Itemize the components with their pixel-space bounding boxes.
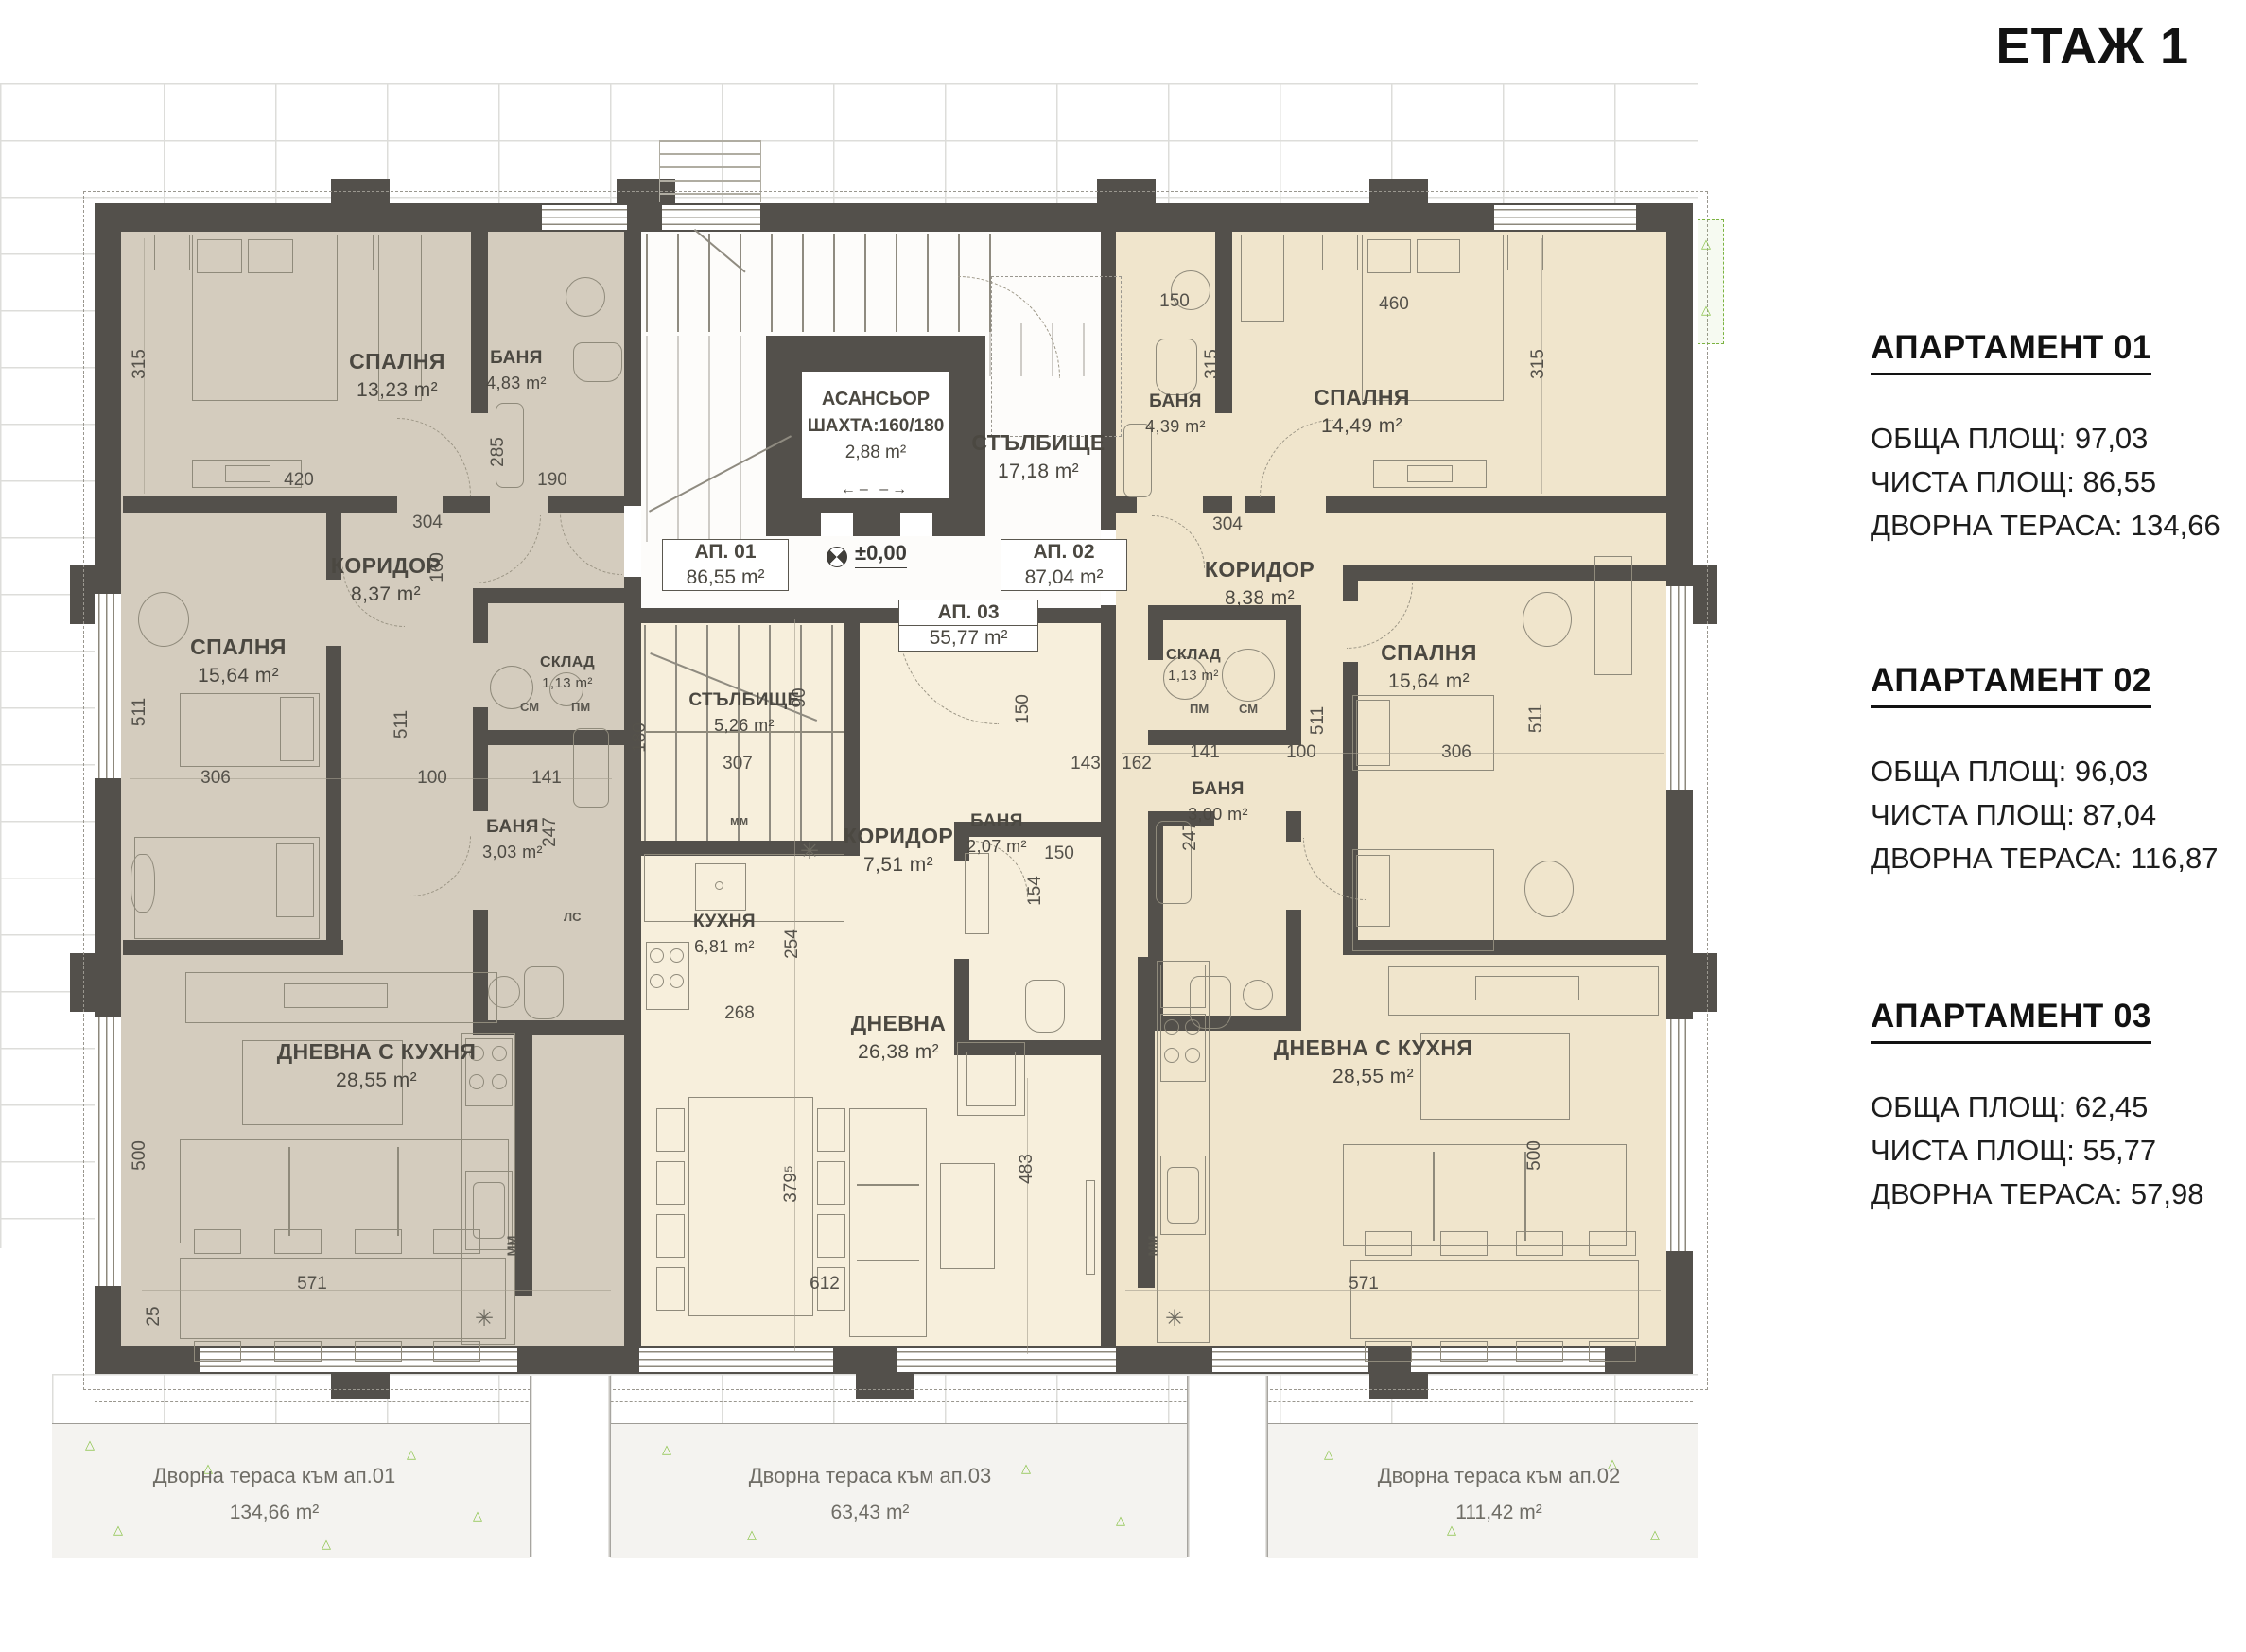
room-label-ap1-storage: СКЛАД 1,13 m² bbox=[540, 652, 595, 693]
dim-label: 268 bbox=[724, 1003, 755, 1024]
room-label-ap1-bed2: СПАЛНЯ 15,64 m² bbox=[190, 632, 287, 690]
dim-label: 304 bbox=[1212, 514, 1243, 535]
dim-label: 180 bbox=[630, 722, 651, 753]
room-label-ap2-bath1: БАНЯ 4,39 m² bbox=[1145, 390, 1206, 439]
dim-line bbox=[1027, 1078, 1028, 1354]
apartment-01-info: АПАРТАМЕНТ 01 ОБЩА ПЛОЩ: 97,03 ЧИСТА ПЛО… bbox=[1871, 329, 2246, 548]
room-label-ap1-bed1: СПАЛНЯ 13,23 m² bbox=[349, 346, 445, 405]
room-label-ap2-living: ДНЕВНА С КУХНЯ 28,55 m² bbox=[1274, 1033, 1473, 1091]
dryer-tag: ПМ bbox=[1190, 702, 1209, 716]
plant-marker-icon bbox=[662, 1442, 671, 1457]
dim-label: 285 bbox=[488, 437, 509, 467]
dim-label: 315 bbox=[1528, 349, 1549, 379]
dim-label: 511 bbox=[1308, 706, 1329, 735]
dim-label: 511 bbox=[130, 698, 150, 726]
page-title: ЕТАЖ 1 bbox=[1996, 17, 2189, 76]
dim-label: 307 bbox=[723, 754, 753, 774]
room-label-ap1-bath2: БАНЯ 3,03 m² bbox=[482, 815, 543, 864]
room-label-ap3-corridor: КОРИДОР 7,51 m² bbox=[844, 821, 953, 879]
room-label-ap1-bath1: БАНЯ 4,83 m² bbox=[486, 346, 547, 395]
plant-marker-icon bbox=[747, 1527, 757, 1542]
dryer-tag: ПМ bbox=[571, 700, 590, 714]
dim-label: 306 bbox=[200, 768, 231, 789]
dim-label: 483 bbox=[1017, 1154, 1037, 1184]
dim-label: 141 bbox=[1190, 742, 1220, 763]
elevator-name: АСАНСЬОР bbox=[822, 389, 930, 409]
unit-code: АП. 01 bbox=[663, 540, 788, 565]
symbol-icon bbox=[1165, 1305, 1184, 1332]
symbol-icon bbox=[800, 838, 819, 865]
level-marker-icon bbox=[827, 547, 847, 567]
plant-marker-icon bbox=[407, 1447, 416, 1462]
room-label-ap2-bed1: СПАЛНЯ 14,49 m² bbox=[1314, 382, 1410, 441]
dim-label: 420 bbox=[284, 470, 314, 491]
dim-label: 190 bbox=[537, 470, 567, 491]
room-label-ap2-bath2: БАНЯ 3,00 m² bbox=[1188, 777, 1248, 826]
washer-tag: СМ bbox=[520, 700, 539, 714]
room-label-ap2-bed2: СПАЛНЯ 15,64 m² bbox=[1381, 637, 1477, 696]
dim-label: 571 bbox=[297, 1274, 327, 1295]
upper-floor-dashed-outline bbox=[991, 276, 1122, 437]
plant-marker-icon bbox=[1447, 1522, 1456, 1538]
mm-tag: ММ bbox=[504, 1236, 518, 1257]
apartment-02-heading: АПАРТАМЕНТ 02 bbox=[1871, 662, 2151, 708]
dim-label: 100 bbox=[1286, 742, 1316, 763]
room-label-ap1-corridor: КОРИДОР 8,37 m² bbox=[331, 550, 441, 609]
unit-code: АП. 02 bbox=[1001, 540, 1126, 565]
unit-tag-ap2: АП. 02 87,04 m² bbox=[1001, 539, 1127, 591]
symbol-icon bbox=[475, 1305, 494, 1332]
elevator-label: АСАНСЬОР ШАХТА:160/180 2,88 m² ←– –→ bbox=[802, 386, 949, 500]
terrace-label-ap3: Дворна тераса към ап.03 63,43 m² bbox=[749, 1464, 992, 1524]
room-label-ap2-storage: СКЛАД 1,13 m² bbox=[1166, 645, 1221, 686]
floor-plan-page: ЕТАЖ 1 АПАРТАМЕНТ 01 ОБЩА ПЛОЩ: 97,03 ЧИ… bbox=[0, 0, 2246, 1652]
plant-marker-icon bbox=[1116, 1513, 1125, 1528]
building-outline-dashed bbox=[83, 191, 1708, 1390]
elevator-door-arrows: ←– –→ bbox=[802, 478, 949, 500]
dim-label: 254 bbox=[782, 929, 803, 959]
dim-label: 150 bbox=[1013, 694, 1034, 724]
paving-top bbox=[52, 83, 1698, 203]
terrace-path bbox=[1187, 1376, 1268, 1557]
room-label-ap2-corridor: КОРИДОР 8,38 m² bbox=[1205, 554, 1315, 613]
apartment-01-terrace: ДВОРНА ТЕРАСА: 134,66 bbox=[1871, 504, 2246, 548]
apartment-03-info: АПАРТАМЕНТ 03 ОБЩА ПЛОЩ: 62,45 ЧИСТА ПЛО… bbox=[1871, 998, 2246, 1216]
dim-label: 306 bbox=[1441, 742, 1471, 763]
ls-tag: ЛС bbox=[564, 910, 582, 924]
elevator-shaft-size: ШАХТА:160/180 bbox=[808, 416, 945, 436]
plant-marker-icon bbox=[1701, 236, 1711, 252]
plant-marker-icon bbox=[1701, 303, 1711, 318]
plant-marker-icon bbox=[113, 1522, 123, 1538]
terrace-label-ap1: Дворна тераса към ап.01 134,66 m² bbox=[153, 1464, 396, 1524]
plant-marker-icon bbox=[473, 1508, 482, 1523]
room-label-ap1-living: ДНЕВНА С КУХНЯ 28,55 m² bbox=[277, 1036, 477, 1095]
dim-label: 143 bbox=[1071, 754, 1101, 774]
dim-label: 511 bbox=[392, 710, 412, 739]
apartment-01-total: ОБЩА ПЛОЩ: 97,03 bbox=[1871, 417, 2246, 461]
dim-label: 571 bbox=[1349, 1274, 1379, 1295]
dim-label: 379⁵ bbox=[781, 1165, 802, 1203]
paving-left bbox=[0, 83, 95, 1248]
dim-label: 162 bbox=[1122, 754, 1152, 774]
apartment-03-heading: АПАРТАМЕНТ 03 bbox=[1871, 998, 2151, 1044]
dim-label: 315 bbox=[1202, 349, 1223, 379]
apartment-03-total: ОБЩА ПЛОЩ: 62,45 bbox=[1871, 1086, 2246, 1129]
unit-tag-ap3: АП. 03 55,77 m² bbox=[898, 600, 1038, 652]
dim-label: 150 bbox=[1159, 291, 1190, 312]
apartment-02-terrace: ДВОРНА ТЕРАСА: 116,87 bbox=[1871, 837, 2246, 880]
room-label-ap3-bath: БАНЯ 2,07 m² bbox=[966, 809, 1027, 859]
dim-label: 141 bbox=[531, 768, 562, 789]
plant-marker-icon bbox=[1324, 1447, 1333, 1462]
dim-label: 247 bbox=[540, 817, 561, 847]
room-label-ap3-stairs: СТЪЛБИЩЕ 5,26 m² bbox=[688, 688, 799, 738]
apartment-03-net: ЧИСТА ПЛОЩ: 55,77 bbox=[1871, 1129, 2246, 1173]
apartment-01-net: ЧИСТА ПЛОЩ: 86,55 bbox=[1871, 461, 2246, 504]
dim-label: 25 bbox=[144, 1306, 165, 1326]
unit-code: АП. 03 bbox=[899, 600, 1037, 626]
elevator-area: 2,88 m² bbox=[845, 443, 906, 462]
dim-label: 612 bbox=[810, 1274, 840, 1295]
terrace-dashed-line bbox=[95, 1401, 1693, 1402]
washer-tag: СМ bbox=[1239, 702, 1258, 716]
mm-tag: мм bbox=[730, 813, 748, 827]
room-label-ap3-living: ДНЕВНА 26,38 m² bbox=[851, 1008, 947, 1067]
dim-label: 304 bbox=[412, 513, 443, 533]
mm-tag: ММ bbox=[1145, 1236, 1159, 1257]
room-label-ap3-kitchen: КУХНЯ 6,81 m² bbox=[693, 910, 756, 959]
plant-marker-icon bbox=[1021, 1461, 1031, 1476]
dim-label: 500 bbox=[1524, 1140, 1545, 1171]
terrace-path bbox=[530, 1376, 611, 1557]
plant-marker-icon bbox=[322, 1537, 331, 1552]
unit-area: 87,04 m² bbox=[1001, 565, 1126, 590]
dim-line bbox=[142, 1290, 611, 1291]
room-label-core-stairs: СТЪЛБИЩЕ 17,18 m² bbox=[971, 427, 1105, 486]
plant-marker-icon bbox=[85, 1437, 95, 1452]
dim-label: 150 bbox=[1044, 843, 1074, 864]
level-marker-label: ±0,00 bbox=[855, 541, 907, 568]
dim-label: 154 bbox=[1025, 876, 1046, 906]
dim-line bbox=[1125, 1290, 1661, 1291]
apartment-02-net: ЧИСТА ПЛОЩ: 87,04 bbox=[1871, 793, 2246, 837]
dim-label: 315 bbox=[130, 349, 150, 379]
terrace-label-ap2: Дворна тераса към ап.02 111,42 m² bbox=[1378, 1464, 1621, 1524]
apartment-02-total: ОБЩА ПЛОЩ: 96,03 bbox=[1871, 750, 2246, 793]
unit-area: 55,77 m² bbox=[899, 626, 1037, 651]
unit-area: 86,55 m² bbox=[663, 565, 788, 590]
apartment-03-terrace: ДВОРНА ТЕРАСА: 57,98 bbox=[1871, 1173, 2246, 1216]
unit-tag-ap1: АП. 01 86,55 m² bbox=[662, 539, 789, 591]
dim-label: 100 bbox=[417, 768, 447, 789]
dim-label: 511 bbox=[1526, 704, 1547, 733]
dim-label: 500 bbox=[130, 1140, 150, 1171]
dim-label: 460 bbox=[1379, 294, 1409, 315]
plant-marker-icon bbox=[1650, 1527, 1660, 1542]
apartment-01-heading: АПАРТАМЕНТ 01 bbox=[1871, 329, 2151, 375]
apartment-02-info: АПАРТАМЕНТ 02 ОБЩА ПЛОЩ: 96,03 ЧИСТА ПЛО… bbox=[1871, 662, 2246, 880]
